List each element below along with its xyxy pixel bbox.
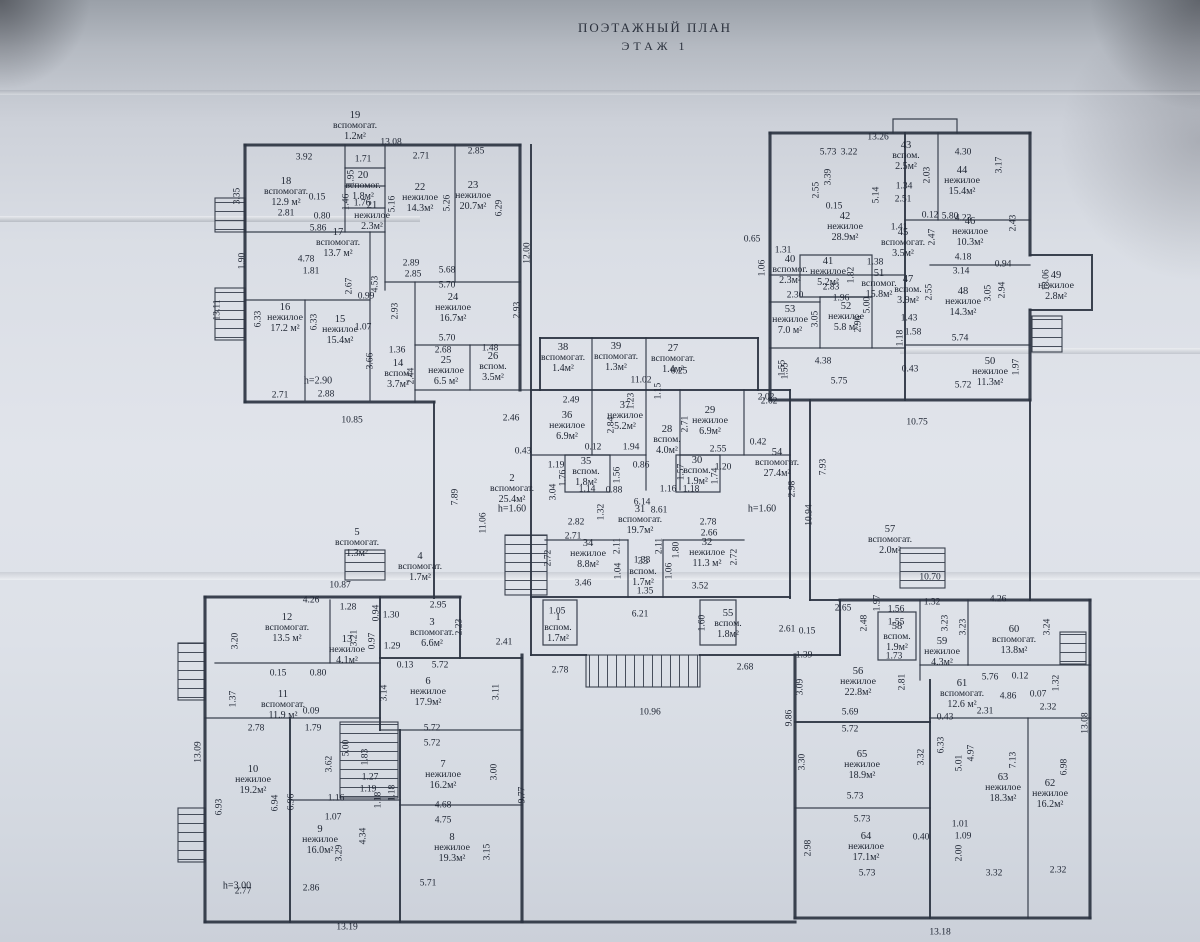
dim-label: 0.65 [744, 235, 761, 245]
dim-label: 3.62 [325, 756, 335, 773]
dim-label: 4.34 [359, 828, 369, 845]
height-note: h=2.90 [304, 376, 332, 387]
room-label-6: 6нежилое17.9м² [410, 676, 446, 708]
dim-label: 0.80 [310, 669, 327, 679]
dim-label: 5.72 [955, 381, 972, 391]
dim-label: 1.71 [355, 155, 372, 165]
dim-label: 1.80 [672, 542, 682, 559]
dim-label: 8.61 [651, 506, 668, 516]
dim-label: 2.11 [655, 538, 665, 554]
dim-label: 1.07 [325, 813, 342, 823]
dim-label: 3.24 [1043, 619, 1053, 636]
room-label-30: 30вспом.1.9м² [683, 455, 711, 487]
dim-label: 5.74 [952, 334, 969, 344]
dim-label: 5.69 [842, 708, 859, 718]
dim-label: 13.11 [213, 299, 223, 320]
room-label-22: 22нежилое14.3м² [402, 182, 438, 214]
dim-label: 4.26 [303, 596, 320, 606]
dim-label: 6.33 [254, 311, 264, 328]
dim-label: 0.97 [368, 633, 378, 650]
room-label-10: 10нежилое19.2м² [235, 764, 271, 796]
dim-label: 3.22 [841, 148, 858, 158]
dim-label: 0.12 [585, 443, 602, 453]
dim-label: 0.99 [358, 292, 375, 302]
dim-label: 5.86 [310, 224, 327, 234]
dim-label: 1.01 [952, 820, 969, 830]
dim-label: 4.26 [990, 595, 1007, 605]
room-label-40: 40вспомог.2.3м² [772, 254, 807, 286]
dim-label: 5.16 [388, 196, 398, 213]
dim-label: 1.07 [355, 323, 372, 333]
dim-label: 5.14 [872, 187, 882, 204]
dim-label: 2.23 [455, 619, 465, 636]
dim-label: 2.02 [758, 393, 775, 403]
dim-label: 6.29 [495, 200, 505, 217]
dim-label: 2.98 [804, 840, 814, 857]
dim-label: 1.56 [613, 467, 623, 484]
dim-label: 2.78 [248, 724, 265, 734]
dim-label: 2.65 [835, 604, 852, 614]
room-label-7: 7нежилое16.2м² [425, 759, 461, 791]
room-label-8: 8нежилое19.3м² [434, 832, 470, 864]
room-label-16: 16нежилое17.2 м² [267, 302, 303, 334]
dim-label: 3.29 [335, 845, 345, 862]
dim-label: 1.28 [340, 603, 357, 613]
dim-label: 12.00 [523, 242, 533, 263]
dim-label: 5.00 [863, 297, 873, 314]
dim-label: 2.68 [435, 346, 452, 356]
dim-label: 1.79 [305, 724, 322, 734]
dim-label: 4.38 [815, 357, 832, 367]
room-label-36: 36нежилое6.9м² [549, 410, 585, 442]
dim-label: 1.83 [361, 749, 371, 766]
dim-label: 6.21 [632, 610, 649, 620]
room-label-39: 39вспомогат.1.3м² [594, 341, 638, 373]
dim-label: 2.43 [1009, 215, 1019, 232]
dim-label: 1.37 [229, 691, 239, 708]
dim-label: 0.12 [1012, 672, 1029, 682]
dim-label: 5.73 [820, 148, 837, 158]
dim-label: 3.05 [984, 285, 994, 302]
dim-label: 10.96 [639, 708, 660, 718]
dim-label: 11.02 [630, 376, 651, 386]
dim-label: 3.52 [692, 582, 709, 592]
dim-label: 10.75 [906, 418, 927, 428]
room-label-26: 26вспом.3.5м² [479, 351, 507, 383]
dim-label: 5.73 [847, 792, 864, 802]
dim-label: 0.13 [397, 661, 414, 671]
dim-label: 3.46 [575, 579, 592, 589]
dim-label: 1.97 [873, 595, 883, 612]
room-label-64: 64нежилое17.1м² [848, 831, 884, 863]
room-label-62: 62нежилое16.2м² [1032, 778, 1068, 810]
dim-label: 1.55 [888, 618, 905, 628]
dim-label: 2.78 [552, 666, 569, 676]
dim-label: 1.58 [905, 328, 922, 338]
dim-label: 7.93 [819, 459, 829, 476]
dim-label: 4.78 [298, 255, 315, 265]
room-label-4: 4вспомогат.1.7м² [398, 551, 442, 583]
room-label-54: 54вспомогат.27.4м² [755, 447, 799, 479]
room-label-61: 61вспомогат.12.6 м² [940, 678, 984, 710]
dim-label: 3.21 [350, 630, 360, 647]
room-label-9: 9нежилое16.0м² [302, 824, 338, 856]
room-label-5: 5вспомогат.1.3м² [335, 527, 379, 559]
dim-label: 2.71 [413, 152, 430, 162]
dim-label: 1.18 [388, 785, 398, 802]
floor-plan-photo: ПОЭТАЖНЫЙ ПЛАН ЭТАЖ 1 [0, 0, 1200, 942]
dim-label: 2.86 [303, 884, 320, 894]
dim-label: 1.04 [614, 563, 624, 580]
dim-label: 0.07 [1030, 690, 1047, 700]
dim-label: 4.75 [435, 816, 452, 826]
dim-label: 2.96 [854, 316, 864, 333]
dim-label: 5.72 [432, 661, 449, 671]
dim-label: 6.14 [634, 498, 651, 508]
dim-label: 10.70 [919, 573, 940, 583]
room-label-50: 50нежилое11.3м² [972, 356, 1008, 388]
dim-label: 4.53 [371, 276, 381, 293]
dim-label: 0.40 [913, 833, 930, 843]
dim-label: 2.48 [860, 615, 870, 632]
dim-label: 6.98 [1060, 759, 1070, 776]
dim-label: 2.66 [701, 529, 718, 539]
dim-label: 5.75 [831, 377, 848, 387]
dim-label: 4.18 [955, 253, 972, 263]
dim-label: 5.76 [982, 673, 999, 683]
dim-label: 5.26 [443, 195, 453, 212]
room-label-18: 18вспомогат.12.9 м² [264, 176, 308, 208]
room-label-42: 42нежилое28.9м² [827, 211, 863, 243]
dim-label: 1.90 [238, 253, 248, 270]
dim-label: 13.08 [380, 138, 401, 148]
room-label-28: 28вспом.4.0м² [653, 424, 681, 456]
room-label-23: 23нежилое20.7м² [455, 180, 491, 212]
dim-label: 5.72 [842, 725, 859, 735]
dim-label: 2.93 [513, 302, 523, 319]
room-label-11: 11вспомогат.11.9 м² [261, 689, 305, 721]
dim-label: 1.32 [1052, 675, 1062, 692]
room-label-59: 59нежилое4.3м² [924, 636, 960, 668]
dim-label: 2.93 [391, 303, 401, 320]
dim-label: 6.93 [215, 799, 225, 816]
dim-label: 0.86 [633, 461, 650, 471]
room-label-44: 44нежилое15.4м² [944, 165, 980, 197]
dim-label: 0.25 [671, 367, 688, 377]
room-label-47: 47вспом.3.9м² [894, 274, 922, 306]
room-label-3: 3вспомогат.6.6м² [410, 617, 454, 649]
dim-label: 2.89 [403, 259, 420, 269]
dim-label: 3.39 [824, 169, 834, 186]
dim-label: 1.81 [303, 267, 320, 277]
dim-label: 2.41 [496, 638, 513, 648]
dim-label: 3.11 [492, 684, 502, 700]
dim-label: 7.13 [1009, 752, 1019, 769]
height-note: h=3.00 [223, 881, 251, 892]
dim-label: 2.84 [607, 417, 617, 434]
dim-label: 1.55 [781, 363, 791, 380]
dim-label: 3.17 [995, 157, 1005, 174]
dim-label: 1.56 [888, 605, 905, 615]
room-label-53: 53нежилое7.0 м² [772, 304, 808, 336]
dim-label: 3.15 [483, 844, 493, 861]
dim-label: 5.70 [439, 334, 456, 344]
dim-label: 3.04 [549, 484, 559, 501]
dim-label: 6.33 [937, 737, 947, 754]
dim-label: 13.18 [929, 928, 950, 938]
room-label-12: 12вспомогат.13.5 м² [265, 612, 309, 644]
dim-label: 1.43 [901, 314, 918, 324]
dim-label: 5.72 [424, 724, 441, 734]
dim-label: 2.72 [730, 549, 740, 566]
dim-label: 1.96 [833, 294, 850, 304]
dim-label: 1.76 [559, 470, 569, 487]
room-label-48: 48нежилое14.3м² [945, 286, 981, 318]
dim-label: 3.92 [296, 153, 313, 163]
dim-label: 1.27 [362, 773, 379, 783]
dim-label: 0.43 [515, 447, 532, 457]
dim-label: 5.70 [439, 281, 456, 291]
dim-label: 2.81 [278, 209, 295, 219]
dim-label: 1.34 [896, 182, 913, 192]
dim-label: 13.09 [194, 741, 204, 762]
dim-label: 9.77 [518, 787, 528, 804]
dim-label: 1.33 [634, 556, 651, 566]
dim-label: 2.98 [788, 481, 798, 498]
dim-label: 2.78 [700, 518, 717, 528]
dim-label: 1.46 [342, 194, 352, 211]
dim-label: 2.00 [955, 845, 965, 862]
room-label-35: 35вспом.1.8м² [572, 456, 600, 488]
dim-label: 5.72 [424, 739, 441, 749]
dim-label: 0.88 [606, 486, 623, 496]
room-label-56: 56нежилое22.8м² [840, 666, 876, 698]
dim-label: 2.88 [318, 390, 335, 400]
dim-label: 1.32 [924, 598, 941, 608]
dim-label: 2.11 [613, 538, 623, 554]
dim-label: 1.30 [383, 611, 400, 621]
room-label-57: 57вспомогат.2.0м² [868, 524, 912, 556]
dim-label: 3.32 [917, 749, 927, 766]
dim-label: 1.35 [637, 587, 654, 597]
dim-label: 10.87 [329, 581, 350, 591]
dim-label: 2.82 [568, 518, 585, 528]
room-label-65: 65нежилое18.9м² [844, 749, 880, 781]
dim-label: 1.18 [896, 330, 906, 347]
dim-label: 1.09 [955, 832, 972, 842]
dim-label: 0.94 [372, 605, 382, 622]
dim-label: 1.60 [698, 615, 708, 632]
dim-label: 0.12 [922, 211, 939, 221]
dim-label: 1.38 [867, 258, 884, 268]
room-label-63: 63нежилое18.3м² [985, 772, 1021, 804]
dim-label: 3.35 [233, 188, 243, 205]
dim-label: 1.16 [660, 485, 677, 495]
height-note: h=1.60 [498, 504, 526, 515]
dim-label: 0.15 [309, 193, 326, 203]
dim-label: 1.73 [886, 652, 903, 662]
room-label-1: 1вспом.1.7м² [544, 612, 572, 644]
dim-label: 1.06 [665, 563, 675, 580]
dim-label: 6.33 [310, 314, 320, 331]
dim-label: 11.06 [479, 512, 489, 533]
room-label-51: 51вспомог.15.8м² [861, 268, 896, 300]
dim-label: 13.08 [1081, 712, 1091, 733]
dim-label: 3.20 [231, 633, 241, 650]
dim-label: 2.30 [787, 291, 804, 301]
dim-label: 1.18 [683, 485, 700, 495]
dim-label: 3.66 [366, 353, 376, 370]
dim-label: 1.05 [549, 607, 566, 617]
room-label-38: 38вспомогат.1.4м² [541, 342, 585, 374]
dim-label: 2.46 [503, 414, 520, 424]
dim-label: 2.95 [430, 601, 447, 611]
dim-label: 2.49 [563, 396, 580, 406]
room-label-32: 32нежилое11.3 м² [689, 537, 725, 569]
dim-label: 0.43 [937, 713, 954, 723]
dim-label: 1.76 [354, 199, 371, 209]
dim-label: 3.14 [380, 685, 390, 702]
dim-label: 13.06 [1042, 269, 1052, 290]
dim-label: 5.00 [342, 740, 352, 757]
dim-label: 1.14 [579, 485, 596, 495]
dim-label: 1.36 [389, 346, 406, 356]
room-label-60: 60вспомогат.13.8м² [992, 624, 1036, 656]
dim-label: 5.73 [854, 815, 871, 825]
dim-label: 2.68 [737, 663, 754, 673]
dim-label: 4.23 [955, 214, 972, 224]
dim-label: 0.15 [799, 627, 816, 637]
room-label-19: 19вспомогат.1.2м² [333, 110, 377, 142]
dim-label: 1.94 [623, 443, 640, 453]
dim-label: 0.15 [826, 202, 843, 212]
dim-label: 1.82 [847, 267, 857, 284]
dim-label: 2.32 [1050, 866, 1067, 876]
dim-label: 1.06 [758, 260, 768, 277]
dim-label: 2.03 [923, 167, 933, 184]
dim-label: 1.74 [711, 468, 721, 485]
dim-label: 4.97 [967, 745, 977, 762]
height-note: h=1.60 [748, 504, 776, 515]
dim-label: 1.31 [775, 246, 792, 256]
dim-label: 7.89 [451, 489, 461, 506]
dim-label: 4.86 [1000, 692, 1017, 702]
dim-label: 2.71 [681, 416, 691, 433]
dim-label: 3.23 [941, 615, 951, 632]
room-label-43: 43вспом.2.5м² [892, 140, 920, 172]
dim-label: 2.81 [898, 674, 908, 691]
dim-label: 3.05 [811, 311, 821, 328]
dim-label: 2.55 [925, 284, 935, 301]
dim-label: 2.85 [468, 147, 485, 157]
dim-label: 0.94 [995, 260, 1012, 270]
dim-label: 2.32 [1040, 703, 1057, 713]
dim-label: 10.85 [341, 416, 362, 426]
dim-label: 0.80 [314, 212, 331, 222]
dim-label: 1.48 [482, 344, 499, 354]
room-label-25: 25нежилое6.5 м² [428, 355, 464, 387]
dim-label: 3.09 [796, 679, 806, 696]
dim-label: 13.26 [867, 133, 888, 143]
room-label-34: 34нежилое8.8м² [570, 538, 606, 570]
dim-label: 9.86 [785, 710, 795, 727]
dim-label: 4.68 [435, 801, 452, 811]
dim-label: 1.95 [347, 170, 357, 187]
dim-label: 0.43 [902, 365, 919, 375]
dim-label: 2.71 [272, 391, 289, 401]
dim-label: 3.23 [959, 619, 969, 636]
room-label-24: 24нежилое16.7м² [435, 292, 471, 324]
dim-label: 1.39 [796, 651, 813, 661]
dim-label: 0.09 [303, 707, 320, 717]
dim-label: 2.71 [565, 532, 582, 542]
dim-label: 2.47 [928, 229, 938, 246]
dim-label: 2.44 [407, 368, 417, 385]
dim-label: 1.57 [677, 464, 687, 481]
room-label-29: 29нежилое6.9м² [692, 405, 728, 437]
dim-label: 5.68 [439, 266, 456, 276]
dim-label: 4.30 [955, 148, 972, 158]
dim-label: 3.32 [986, 869, 1003, 879]
dim-label: 3.30 [798, 754, 808, 771]
dim-label: 1.18 [374, 792, 384, 809]
room-label-55: 55вспом.1.8м² [714, 608, 742, 640]
dim-label: 5.01 [955, 755, 965, 772]
dim-label: 1.15 [654, 383, 664, 400]
dim-label: 0.42 [750, 438, 767, 448]
dim-label: 0.15 [270, 669, 287, 679]
dim-label: 13.19 [336, 923, 357, 933]
dim-label: 2.83 [823, 283, 840, 293]
dim-label: 1.41 [891, 223, 908, 233]
dim-label: 1.23 [627, 393, 637, 410]
dim-label: 1.29 [384, 642, 401, 652]
dim-label: 2.67 [345, 278, 355, 295]
dim-label: 3.00 [490, 764, 500, 781]
dim-label: 6.96 [287, 794, 297, 811]
dim-label: 6.94 [271, 795, 281, 812]
dim-label: 5.73 [859, 869, 876, 879]
dim-label: 3.14 [953, 267, 970, 277]
dim-label: 2.51 [895, 195, 912, 205]
dim-label: 2.31 [977, 707, 994, 717]
dim-label: 1.97 [1012, 359, 1022, 376]
dim-label: 2.55 [710, 445, 727, 455]
dim-label: 10.94 [805, 504, 815, 525]
room-label-2: 2вспомогат.25.4м² [490, 473, 534, 505]
dim-label: 2.55 [812, 182, 822, 199]
dim-label: 2.61 [779, 625, 796, 635]
dim-label: 1.32 [597, 504, 607, 521]
plan-labels: 1вспом.1.7м²2вспомогат.25.4м²3вспомогат.… [0, 0, 1200, 942]
dim-label: 2.94 [998, 282, 1008, 299]
dim-label: 2.85 [405, 270, 422, 280]
dim-label: 2.72 [544, 550, 554, 567]
room-label-15: 15нежилое15.4м² [322, 314, 358, 346]
dim-label: 5.71 [420, 879, 437, 889]
dim-label: 1.16 [328, 794, 345, 804]
